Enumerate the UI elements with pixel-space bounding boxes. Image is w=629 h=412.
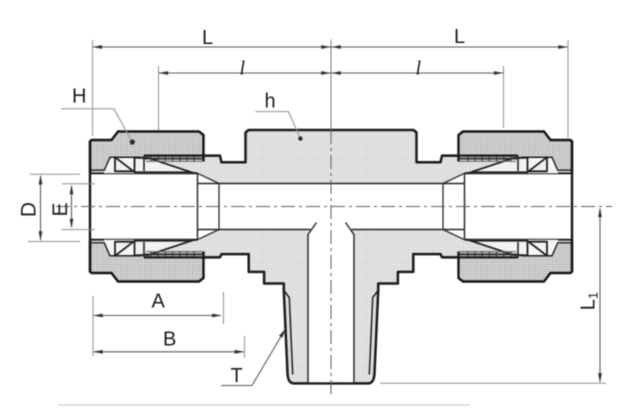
svg-text:D: D — [18, 202, 41, 217]
svg-text:L: L — [202, 27, 213, 49]
svg-text:B: B — [163, 329, 176, 351]
svg-text:l: l — [240, 58, 246, 80]
svg-text:h: h — [265, 91, 276, 113]
svg-text:L: L — [454, 26, 465, 48]
svg-text:H: H — [72, 86, 86, 108]
svg-text:E: E — [49, 202, 72, 216]
svg-text:T: T — [231, 365, 243, 387]
svg-text:l: l — [416, 58, 422, 80]
svg-text:A: A — [152, 291, 166, 313]
